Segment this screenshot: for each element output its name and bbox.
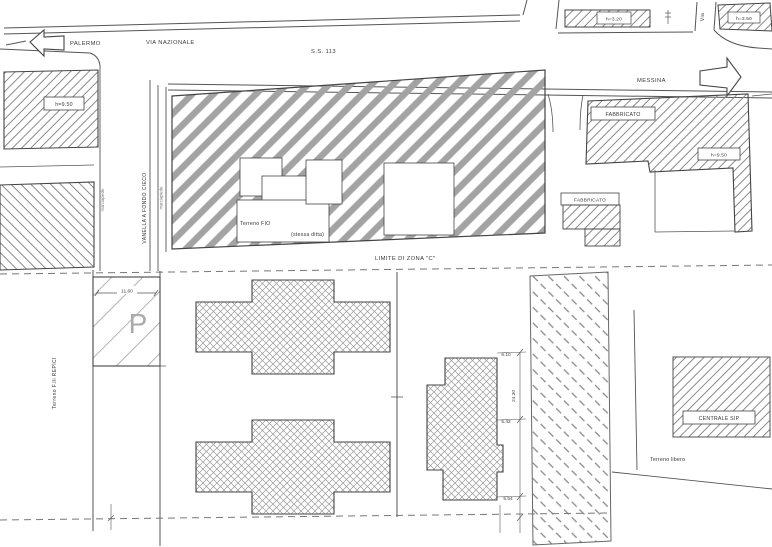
left-lower-parcel xyxy=(0,182,94,270)
east-terreno-fio-parcel xyxy=(530,272,611,545)
via-corner-curb xyxy=(714,30,772,49)
left-parcels: h=9.50 xyxy=(0,70,98,270)
dim-bottom-label: 5.54 xyxy=(503,496,513,502)
corner-strip-height-label: h=3.50 xyxy=(736,16,752,22)
parking-width-dim: 11.60 xyxy=(121,289,133,295)
cross-building-south xyxy=(196,420,390,514)
libero-south-boundary xyxy=(612,472,772,489)
via-label: Via xyxy=(700,13,706,21)
parking-letter: P xyxy=(129,308,148,339)
palermo-label: PALERMO xyxy=(70,41,101,47)
messina-label: MESSINA xyxy=(637,78,666,84)
main-building xyxy=(172,70,545,249)
zone-c-label: LIMITE DI ZONA "C" xyxy=(375,256,436,262)
north-strip-height-label: h=3.20 xyxy=(606,17,622,23)
west-lane xyxy=(100,66,166,271)
ss113-label: S.S. 113 xyxy=(311,49,336,55)
centrale-sip-building xyxy=(673,357,770,437)
terreno-fio-label: Terreno FIO xyxy=(240,221,270,227)
terreno-repici-label: Terreno F.lli REPICI xyxy=(52,357,58,409)
lane-corner-curb xyxy=(90,53,100,66)
terreno-libero-label: Terreno libero xyxy=(650,457,685,463)
south-boundary-mark xyxy=(108,504,114,530)
centrale-sip-label: CENTRALE SIP xyxy=(699,416,740,422)
left-building-height-label: h=9.50 xyxy=(55,102,73,108)
dim-side-label: 24.30 xyxy=(511,390,517,402)
dimension-column xyxy=(497,349,526,533)
courtyard-border-h xyxy=(655,231,735,232)
terreno-libero-parcel: CENTRALE SIP Terreno libero xyxy=(612,310,772,489)
east-boundary-line xyxy=(752,94,772,96)
road-north-edge-outer xyxy=(4,15,520,28)
right-building-cluster: FABBRICATO h=9.50 FABBRICATO xyxy=(561,94,772,246)
via-street-east-curb xyxy=(714,2,716,30)
sidewalk-west-label: marciapiede xyxy=(100,188,105,211)
libero-west-boundary xyxy=(634,310,637,470)
stessa-ditta-label: (stessa ditta) xyxy=(291,232,324,238)
via-street-west-curb xyxy=(695,2,697,31)
via-nazionale-label: VIA NAZIONALE xyxy=(146,40,195,46)
cross-building-north xyxy=(196,280,390,374)
courtyard-4 xyxy=(306,160,342,204)
fabbricato-2-label: FABBRICATO xyxy=(574,198,606,204)
small-annex-2 xyxy=(585,229,620,246)
survey-mark-icon xyxy=(665,10,671,24)
vanella-label: VANELLA A FONDO CIECO xyxy=(142,172,148,243)
side-street-west-curb xyxy=(523,0,527,15)
parcel-divider-line xyxy=(0,165,94,167)
south-lane-west-curb xyxy=(548,94,553,132)
zone-c-boundary-line xyxy=(0,265,772,274)
road-north-edge-inner xyxy=(4,21,520,34)
side-street-east-curb xyxy=(556,0,559,29)
small-annex-1 xyxy=(563,205,620,229)
courtyard-5 xyxy=(384,163,454,235)
dim-top-label: 6.10 xyxy=(501,352,511,358)
south-lane-east-curb xyxy=(580,95,583,130)
fabbricato-1-label: FABBRICATO xyxy=(605,112,640,118)
site-plan-canvas: PALERMO VIA NAZIONALE S.S. 113 MESSINA V… xyxy=(0,0,772,547)
messina-direction-arrow-icon xyxy=(700,58,741,96)
sheet-corner-mark xyxy=(6,41,26,45)
stepped-building xyxy=(427,358,503,500)
main-building-group: Terreno FIO (stessa ditta) xyxy=(172,70,545,249)
road-north-edge-middle xyxy=(558,32,693,33)
site-plan-sheet: PALERMO VIA NAZIONALE S.S. 113 MESSINA V… xyxy=(0,0,772,547)
dim-mid-label: 5.42 xyxy=(501,419,511,425)
boundary-cross-mark xyxy=(391,391,403,403)
parking-area: 11.60 P xyxy=(93,270,166,546)
sidewalk-east-label: marciapiede xyxy=(159,186,164,209)
right-building-height-label: h=9.50 xyxy=(711,153,727,159)
